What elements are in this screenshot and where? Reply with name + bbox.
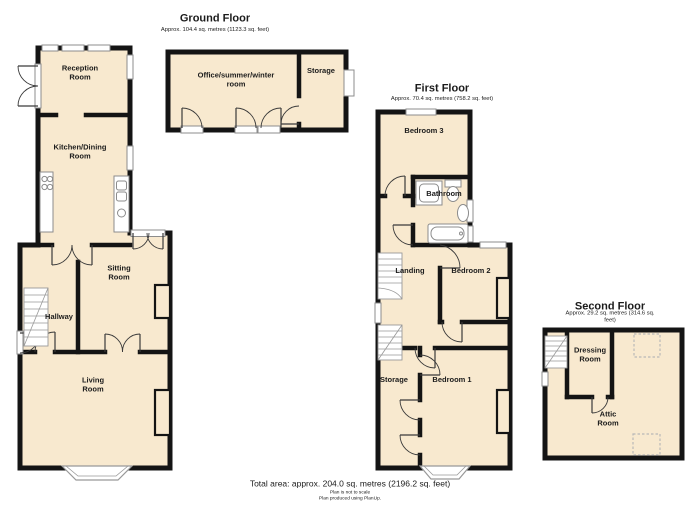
stairs-ground — [24, 288, 48, 346]
window-second-left — [542, 372, 548, 386]
bedroom1-alcove — [497, 390, 510, 433]
ground-floor-plan — [17, 45, 354, 480]
french-doors-reception — [18, 64, 41, 108]
stairs-first-up — [378, 253, 402, 299]
basin-icon — [458, 205, 469, 222]
floorplan-graphic — [0, 0, 700, 509]
stairs-first-down — [378, 325, 402, 360]
first-floor-plan — [375, 109, 510, 479]
toilet-icon — [445, 180, 461, 187]
bedroom2-alcove — [497, 278, 510, 318]
bay-window-ground — [62, 466, 132, 480]
second-floor-plan — [542, 330, 682, 458]
living-alcove — [155, 390, 170, 435]
sitting-alcove — [155, 285, 170, 318]
bay-window-first — [420, 466, 470, 479]
stairs-second — [545, 336, 567, 368]
floorplan-page: Ground Floor Approx. 104.4 sq. metres (1… — [0, 0, 700, 509]
